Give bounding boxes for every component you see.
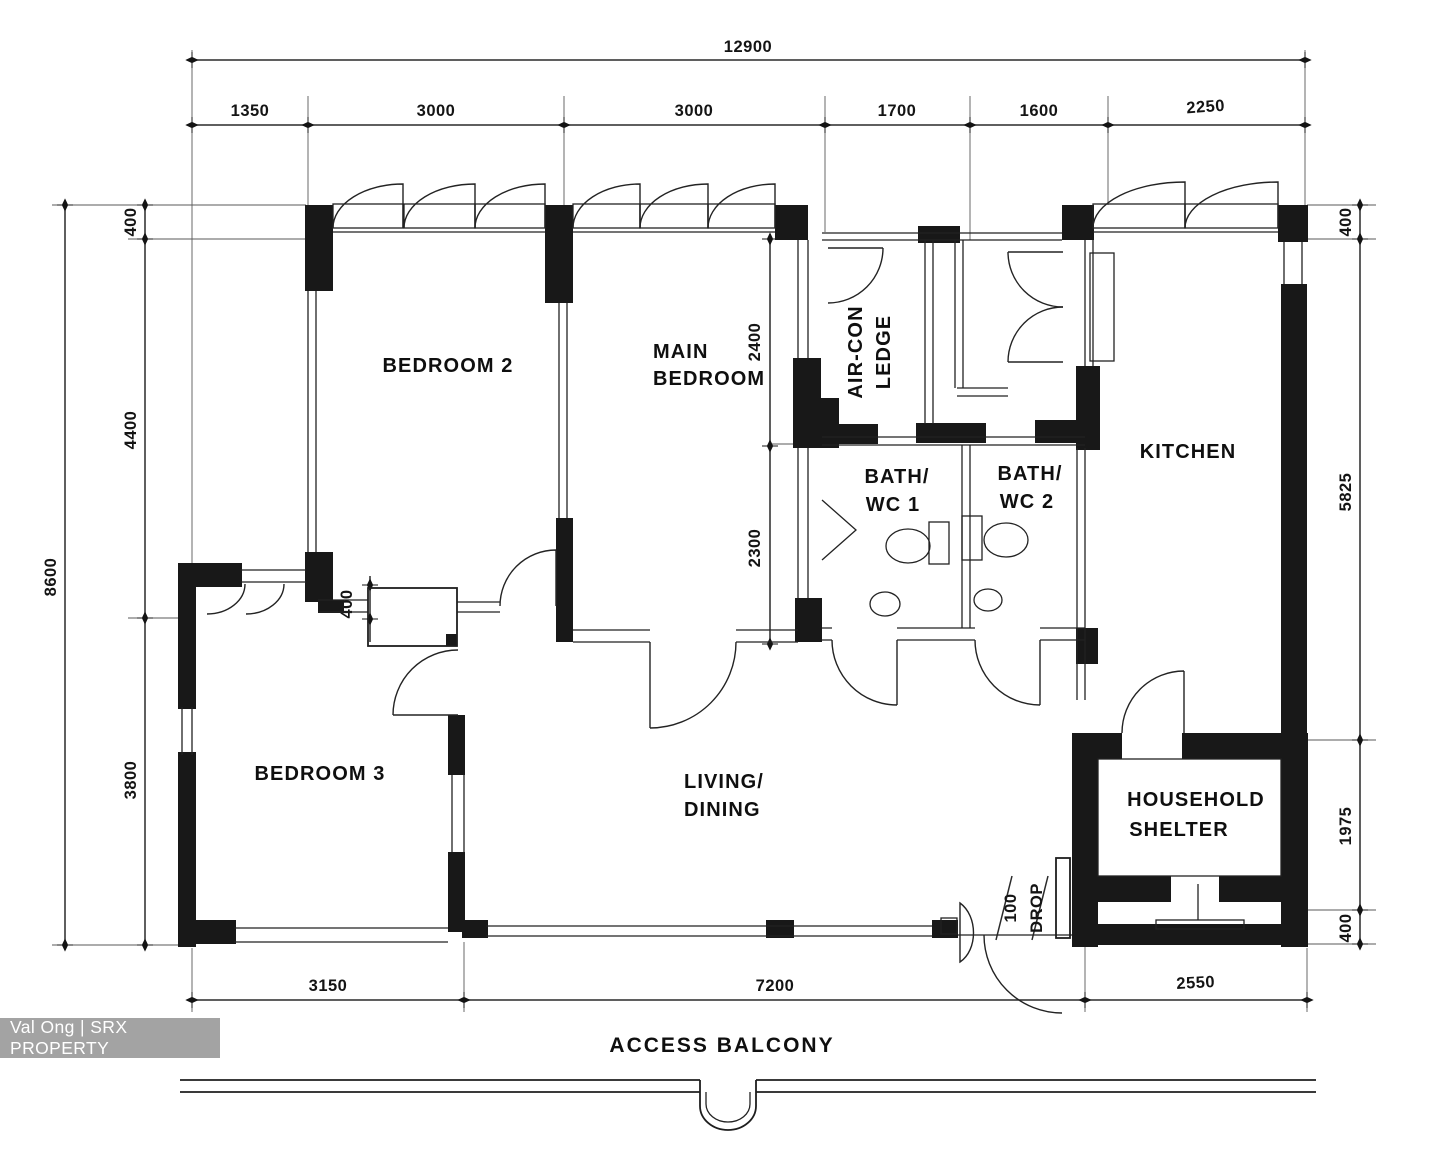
room-label-shelter-1: HOUSEHOLD — [1127, 789, 1265, 811]
room-label-shelter-2: SHELTER — [1129, 819, 1229, 841]
room-label-bath2-1: BATH/ — [997, 463, 1062, 485]
room-label-bath1-1: BATH/ — [864, 466, 929, 488]
floorplan-page: 12900 1350 3000 3000 1700 1600 2250 8600… — [0, 0, 1440, 1160]
main-bedroom-door — [650, 642, 736, 728]
room-label-bedroom2: BEDROOM 2 — [382, 355, 513, 377]
dimension-labels: 12900 1350 3000 3000 1700 1600 2250 8600… — [42, 38, 1355, 995]
kitchen-window — [1093, 182, 1278, 232]
room-label-aircon-1: AIR-CON — [845, 305, 867, 398]
witness-lines — [52, 50, 1376, 1012]
dim-left-1: 400 — [122, 207, 140, 236]
dim-right-2: 5825 — [1337, 473, 1355, 512]
kitchen-shelter-door — [1122, 671, 1184, 733]
room-label-main-bedroom-2: BEDROOM — [653, 368, 765, 390]
watermark-badge: Val Ong | SRX PROPERTY — [0, 1018, 220, 1058]
dim-right-4: 400 — [1337, 913, 1355, 942]
aircon-ledge-door — [828, 248, 883, 303]
bath1-toilet — [870, 522, 949, 616]
fixtures — [368, 500, 1244, 929]
dim-left-3: 3800 — [122, 761, 140, 800]
bath1-door — [832, 640, 897, 705]
dim-interior-2300: 2300 — [746, 529, 764, 568]
dim-left-total: 8600 — [42, 558, 60, 597]
dimension-lines — [65, 60, 1360, 1000]
room-label-bath1-2: WC 1 — [866, 494, 920, 516]
dim-right-1: 400 — [1337, 207, 1355, 236]
room-labels: BEDROOM 2 MAIN BEDROOM AIR-CON LEDGE KIT… — [254, 305, 1264, 841]
dim-top-2: 3000 — [417, 102, 456, 120]
bath2-door — [975, 640, 1040, 705]
dim-right-3: 1975 — [1337, 807, 1355, 846]
bath1-corner-sink — [822, 500, 856, 560]
watermark-text: Val Ong | SRX PROPERTY — [10, 1017, 220, 1059]
room-label-bedroom3: BEDROOM 3 — [254, 763, 385, 785]
access-balcony-label: ACCESS BALCONY — [609, 1034, 834, 1057]
dim-interior-2400: 2400 — [746, 323, 764, 362]
dim-bottom-3: 2550 — [1176, 973, 1216, 993]
dim-drop-label: DROP — [1028, 883, 1046, 933]
room-label-kitchen: KITCHEN — [1140, 441, 1237, 463]
room-label-living-2: DINING — [684, 799, 761, 821]
dim-top-total: 12900 — [724, 38, 772, 56]
dim-bottom-1: 3150 — [309, 977, 348, 995]
room-label-bath2-2: WC 2 — [1000, 491, 1054, 513]
bedroom3-door — [393, 650, 458, 715]
bedroom2-window — [333, 184, 545, 232]
room-label-living-1: LIVING/ — [684, 771, 764, 793]
dim-top-5: 1600 — [1020, 102, 1059, 120]
dim-top-1: 1350 — [231, 102, 270, 120]
kitchen-service-door — [1008, 252, 1114, 362]
dimension-ticks — [57, 52, 1368, 1008]
dim-bottom-2: 7200 — [756, 977, 795, 995]
dim-left-2: 4400 — [122, 411, 140, 450]
dim-top-6: 2250 — [1186, 97, 1226, 118]
bedroom3-side-window — [182, 707, 192, 755]
room-label-aircon-2: LEDGE — [873, 315, 895, 389]
bedroom2-door — [500, 550, 556, 606]
main-bedroom-window — [573, 184, 775, 232]
room-label-main-bedroom-1: MAIN — [653, 341, 709, 363]
dim-top-4: 1700 — [878, 102, 917, 120]
wardrobe-cabinet — [368, 588, 457, 646]
floor-plan-drawing: 12900 1350 3000 3000 1700 1600 2250 8600… — [0, 0, 1440, 1160]
dim-top-3: 3000 — [675, 102, 714, 120]
access-balcony: ACCESS BALCONY — [180, 1034, 1316, 1130]
dim-drop-100: 100 — [1002, 893, 1020, 922]
bath2-toilet — [962, 516, 1028, 611]
